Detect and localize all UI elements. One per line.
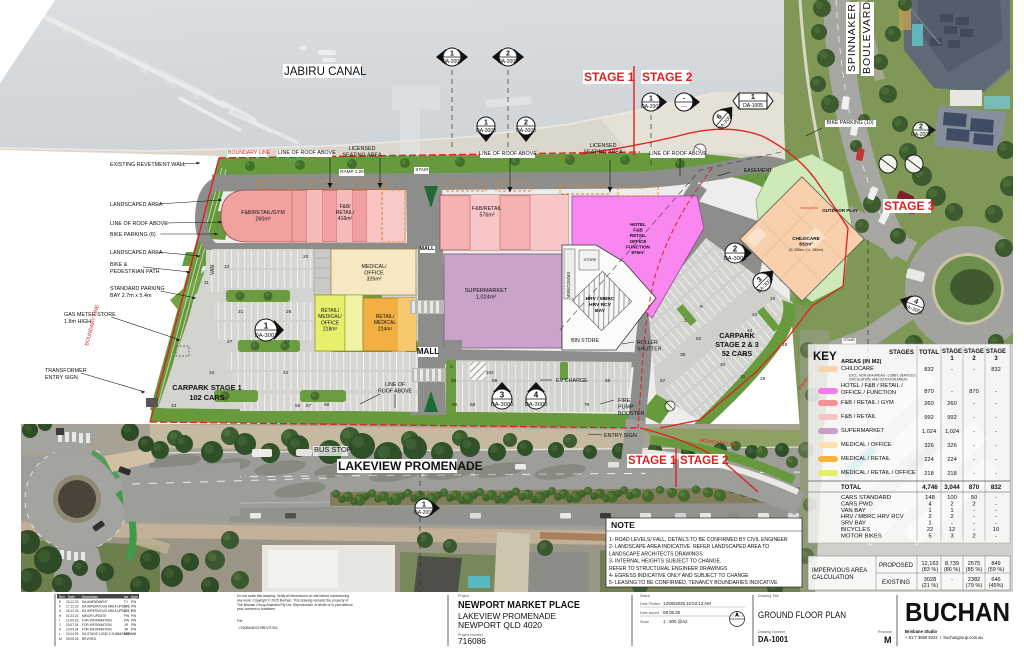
svg-text:I: I [59, 618, 60, 622]
svg-text:832: 832 [991, 484, 1002, 491]
svg-text:35: 35 [680, 352, 686, 358]
svg-text:MALL: MALL [420, 246, 436, 252]
svg-text:BUCHAN: BUCHAN [905, 597, 1010, 627]
svg-text:-: - [995, 415, 997, 421]
svg-text:4- EGRESS INDICATIVE ONLY AND: 4- EGRESS INDICATIVE ONLY AND SUBJECT TO… [609, 573, 749, 579]
svg-text:Scale: Scale [640, 620, 649, 624]
svg-text:Project: Project [458, 594, 469, 598]
svg-text:60: 60 [452, 402, 458, 408]
svg-text:2: 2 [928, 514, 931, 520]
svg-text:-: - [995, 457, 997, 463]
svg-text:(83 %): (83 %) [922, 567, 939, 573]
svg-text:JR: JR [124, 623, 129, 627]
svg-text:REFER TO STRUCTURAL ENGINEER D: REFER TO STRUCTURAL ENGINEER DRAWINGS [609, 566, 728, 572]
svg-text:20: 20 [303, 254, 309, 260]
svg-text:-: - [995, 471, 997, 477]
svg-text:AREAS (IN M2): AREAS (IN M2) [841, 359, 882, 365]
svg-text:1- ROAD LEVELS/ FALL, DETAILS: 1- ROAD LEVELS/ FALL, DETAILS TO BE CONF… [609, 537, 788, 543]
svg-text:1: 1 [264, 322, 269, 331]
svg-text:34: 34 [209, 370, 215, 376]
svg-text:Date Plotted: Date Plotted [640, 602, 660, 606]
svg-text:BICYCLES: BICYCLES [841, 527, 870, 533]
svg-text:224: 224 [924, 457, 934, 463]
svg-text:5- LEASING TO BE CONFIRMED, TE: 5- LEASING TO BE CONFIRMED, TENANCY BOUN… [609, 580, 778, 586]
svg-text:+ 61 7 3859 9222 I buchangro: + 61 7 3859 9222 I buchangroup.com.au [905, 635, 984, 640]
svg-text:43: 43 [171, 403, 177, 409]
svg-text:870: 870 [924, 389, 934, 395]
svg-text:DA-2000: DA-2000 [498, 59, 518, 65]
svg-text:3: 3 [500, 391, 505, 400]
svg-text:PW: PW [131, 605, 136, 609]
svg-text:58: 58 [324, 402, 330, 408]
svg-text:MEDICAL / OFFICE: MEDICAL / OFFICE [841, 442, 892, 448]
svg-text:----: ---- [681, 104, 688, 110]
svg-text:LINE OF ROOF ABOVE: LINE OF ROOF ABOVE [479, 151, 537, 157]
svg-text:LINE OF ROOF ABOVE: LINE OF ROOF ABOVE [649, 151, 707, 157]
svg-text:21: 21 [238, 309, 244, 315]
svg-text:TJ: TJ [124, 600, 128, 604]
svg-text:any work. Copyright © 2025 Buc: any work. Copyright © 2025 Buchan. This … [237, 598, 348, 602]
svg-text:DA-1001: DA-1001 [758, 635, 789, 644]
svg-text:TOTAL: TOTAL [919, 349, 939, 356]
svg-text:G: G [450, 364, 453, 369]
svg-text:PW: PW [131, 614, 136, 618]
svg-text:PROPOSED: PROPOSED [879, 563, 914, 569]
svg-text:260: 260 [924, 401, 934, 407]
svg-text:STAGE: STAGE [986, 349, 1006, 355]
svg-text:88: 88 [605, 378, 611, 384]
svg-text:224: 224 [947, 457, 957, 463]
svg-text:4: 4 [534, 391, 539, 400]
svg-text:89: 89 [492, 378, 498, 384]
svg-text:CARS STANDARD: CARS STANDARD [841, 495, 891, 501]
svg-text:(79 %): (79 %) [966, 583, 983, 589]
svg-text:832: 832 [924, 367, 934, 373]
svg-text:148: 148 [925, 495, 936, 501]
svg-text:-: - [973, 527, 975, 533]
svg-text:PW: PW [124, 618, 129, 622]
svg-text:2: 2 [524, 120, 528, 127]
svg-text:4,746: 4,746 [922, 484, 938, 491]
svg-text:CHILDCARE: CHILDCARE [841, 366, 874, 372]
svg-text:29: 29 [760, 376, 766, 382]
svg-text:12: 12 [949, 527, 956, 533]
svg-text:992: 992 [924, 415, 934, 421]
svg-text:870: 870 [969, 484, 980, 491]
svg-text:GROUND FLOOR PLAN: GROUND FLOOR PLAN [758, 610, 846, 621]
svg-text:Date Issued: Date Issued [640, 611, 659, 615]
svg-text:F: F [59, 605, 61, 609]
svg-text:-: - [951, 389, 953, 395]
svg-text:STAGE 1: STAGE 1 [584, 70, 635, 84]
svg-text:52: 52 [696, 336, 702, 342]
svg-text:1,024: 1,024 [945, 429, 959, 435]
svg-text:DA-3000: DA-3000 [491, 402, 514, 408]
svg-text:1,024: 1,024 [922, 429, 936, 435]
svg-text:20.07.24: 20.07.24 [66, 623, 79, 627]
svg-text:1: 1 [928, 508, 931, 514]
svg-text:GAS METER STORE: GAS METER STORE [64, 312, 116, 318]
svg-text:18.12.23: 18.12.23 [66, 609, 79, 613]
svg-text:L: L [59, 632, 61, 636]
svg-text:VAN BAY: VAN BAY [841, 508, 866, 514]
svg-text:27: 27 [227, 339, 233, 345]
svg-text:STAGE 1: STAGE 1 [628, 455, 677, 467]
svg-text:1 : 500 @A2: 1 : 500 @A2 [663, 619, 688, 624]
svg-text:Drawing Number: Drawing Number [758, 630, 786, 634]
svg-text:REVISED: REVISED [82, 637, 97, 641]
svg-text:-: - [995, 443, 997, 449]
svg-text:-: - [995, 508, 997, 514]
svg-text:326: 326 [924, 443, 934, 449]
svg-text:DA-3000: DA-3000 [516, 128, 536, 134]
svg-text:STAIR: STAIR [415, 167, 429, 172]
svg-text:PEDESTRIAN PATH: PEDESTRIAN PATH [110, 269, 160, 275]
svg-text:-: - [951, 367, 953, 373]
svg-text:-: - [973, 429, 975, 435]
svg-text:50: 50 [971, 495, 978, 501]
svg-text:DA AMENDMENT: DA AMENDMENT [82, 600, 108, 604]
svg-text:Do not scale this drawing. Ver: Do not scale this drawing. Verify all di… [237, 594, 349, 598]
svg-text:2: 2 [506, 51, 510, 58]
svg-text:DA-3001: DA-3001 [724, 256, 747, 262]
svg-text:DA-3001: DA-3001 [255, 333, 278, 339]
svg-text:DA-3000: DA-3000 [476, 128, 496, 134]
svg-text:EXISTING REVETMENT WALL: EXISTING REVETMENT WALL [110, 162, 186, 168]
svg-text:-: - [973, 471, 975, 477]
svg-text:Rev: Rev [59, 595, 65, 599]
svg-text:STANDARD PARKING: STANDARD PARKING [110, 286, 165, 292]
svg-text:MALL: MALL [417, 347, 439, 356]
svg-text:10.09.24: 10.09.24 [66, 628, 79, 632]
svg-text:PW: PW [131, 600, 136, 604]
svg-text:MSB/COMMS: MSB/COMMS [566, 272, 571, 298]
svg-text:EASEMENT: EASEMENT [744, 168, 773, 174]
svg-text:1: 1 [450, 51, 454, 58]
svg-text:RAMP 1:20: RAMP 1:20 [340, 169, 364, 174]
svg-text:BOULEVARD: BOULEVARD [861, 2, 873, 74]
svg-text:2- LANDSCAPE AREA INDICATIVE.: 2- LANDSCAPE AREA INDICATIVE. REFER LAND… [609, 544, 769, 550]
svg-text:MM: MM [131, 632, 137, 636]
svg-text:-: - [973, 508, 975, 514]
svg-text:MINOR UPDATE: MINOR UPDATE [82, 614, 106, 618]
svg-text:-: - [995, 401, 997, 407]
svg-text:EXISTING: EXISTING [882, 580, 910, 586]
svg-text:KEY: KEY [813, 351, 837, 363]
svg-text:HOTEL / F&B / RETAIL /: HOTEL / F&B / RETAIL / [841, 383, 903, 389]
svg-text:M: M [884, 635, 892, 645]
svg-text:1: 1 [422, 502, 426, 509]
svg-text:LINE OF ROOF ABOVE: LINE OF ROOF ABOVE [110, 221, 168, 227]
svg-text:Date: Date [68, 595, 75, 599]
svg-text:-: - [973, 514, 975, 520]
svg-text:BOUNDARY LINE: BOUNDARY LINE [228, 150, 271, 156]
svg-text:Status: Status [640, 594, 650, 598]
svg-text:JABIRU CANAL: JABIRU CANAL [284, 66, 367, 78]
svg-text:12/06/2025 10:52:12 AM: 12/06/2025 10:52:12 AM [663, 601, 711, 606]
svg-text:ENTRY SIGN: ENTRY SIGN [45, 375, 78, 381]
svg-text:File: File [237, 619, 243, 623]
svg-text:F&B / RETAIL: F&B / RETAIL [841, 414, 876, 420]
svg-text:-: - [995, 429, 997, 435]
svg-text:12.05.23: 12.05.23 [66, 618, 79, 622]
svg-text:43: 43 [752, 312, 758, 318]
svg-text:(85 %): (85 %) [966, 567, 983, 573]
svg-text:3,044: 3,044 [944, 484, 960, 491]
svg-text:VAN: VAN [210, 265, 216, 275]
svg-text:DA-2001: DA-2001 [641, 104, 661, 110]
svg-text:BIKE PARKING (6): BIKE PARKING (6) [110, 232, 156, 238]
svg-text:(21 %): (21 %) [922, 583, 939, 589]
svg-text:PW: PW [131, 618, 136, 622]
svg-text:1: 1 [649, 96, 653, 103]
svg-text:-: - [973, 521, 975, 527]
svg-text:Brisbane Studio: Brisbane Studio [905, 629, 938, 634]
svg-text:2: 2 [950, 514, 953, 520]
svg-text:BUS STOP: BUS STOP [314, 445, 352, 454]
svg-text:NEWPORT QLD 4020: NEWPORT QLD 4020 [458, 620, 542, 630]
svg-text:DA-1005: DA-1005 [743, 103, 763, 109]
svg-text:1: 1 [928, 521, 931, 527]
svg-text:-: - [995, 501, 997, 507]
svg-text:218: 218 [924, 471, 934, 477]
svg-text:CIRCULATION, AND OUTDOOR AREAS: CIRCULATION, AND OUTDOOR AREAS [849, 378, 907, 382]
svg-text:11: 11 [204, 280, 209, 286]
svg-text:F&B / RETAIL / GYM: F&B / RETAIL / GYM [841, 400, 894, 406]
svg-text:STAGE 2: STAGE 2 [680, 455, 728, 467]
svg-text:1: 1 [751, 94, 755, 101]
svg-text:SRV BAY: SRV BAY [841, 521, 866, 527]
svg-text:-: - [973, 367, 975, 373]
svg-text:12: 12 [224, 264, 230, 270]
svg-text:ENTRY SIGN: ENTRY SIGN [604, 433, 637, 439]
svg-text:22: 22 [927, 527, 934, 533]
svg-text:08.05.25: 08.05.25 [663, 610, 681, 615]
svg-text:(45%): (45%) [989, 583, 1004, 589]
svg-text:-: - [995, 495, 997, 501]
svg-text:BIN STORE: BIN STORE [571, 338, 599, 344]
svg-text:1: 1 [484, 120, 488, 127]
svg-text:STAGE: STAGE [942, 349, 962, 355]
svg-text:-: - [973, 401, 975, 407]
svg-text:2: 2 [950, 501, 953, 507]
svg-text:09.05.25: 09.05.25 [66, 637, 79, 641]
svg-text:DA IMPERVIOUS AREA UPDATE: DA IMPERVIOUS AREA UPDATE [82, 605, 130, 609]
svg-text:-: - [995, 521, 997, 527]
svg-text:PW: PW [131, 628, 136, 632]
svg-text:STAIR: STAIR [843, 337, 855, 342]
svg-text:DA-3000: DA-3000 [525, 402, 548, 408]
svg-text:TJ: TJ [124, 605, 128, 609]
svg-text:HRV / MBRC HRV RCV: HRV / MBRC HRV RCV [841, 514, 904, 520]
svg-text:Drawing Title: Drawing Title [758, 594, 779, 598]
svg-text:2: 2 [733, 245, 738, 254]
svg-text:992: 992 [947, 415, 957, 421]
svg-text:18: 18 [782, 342, 788, 348]
svg-text:LAKEVIEW PROMENADE: LAKEVIEW PROMENADE [338, 459, 483, 473]
svg-text:Revision: Revision [878, 630, 892, 634]
svg-text:Description: Description [82, 595, 98, 599]
svg-text:(59 %): (59 %) [988, 567, 1005, 573]
svg-text:1.8m HIGH: 1.8m HIGH [64, 319, 91, 325]
svg-text:STAGE 2: STAGE 2 [642, 70, 693, 84]
svg-text:DA-2000: DA-2000 [442, 59, 462, 65]
svg-text:1: 1 [684, 318, 687, 324]
svg-text:FOR INFORMATION: FOR INFORMATION [82, 623, 112, 627]
svg-text:10: 10 [993, 527, 1000, 533]
svg-text:80: 80 [451, 378, 457, 384]
svg-text:The Buchan Group Australia Pty: The Buchan Group Australia Pty Ltd. Repr… [237, 603, 353, 607]
svg-text:56: 56 [295, 403, 301, 409]
svg-text:57: 57 [306, 403, 312, 409]
svg-text:TJ: TJ [124, 609, 128, 613]
svg-text:JR: JR [124, 628, 129, 632]
svg-text:10: 10 [770, 296, 776, 302]
svg-text:STORE: STORE [583, 258, 596, 262]
svg-text:-: - [951, 521, 953, 527]
svg-text:-: - [973, 457, 975, 463]
svg-text:(G: 550m², L1: 282m²): (G: 550m², L1: 282m²) [789, 248, 824, 252]
svg-text:STAGE 3: STAGE 3 [884, 199, 935, 213]
svg-text:STAGES: STAGES [889, 349, 914, 356]
svg-text:2: 2 [919, 124, 923, 131]
svg-text:E: E [59, 600, 61, 604]
svg-text:102: 102 [486, 370, 494, 375]
svg-text:68: 68 [470, 402, 476, 408]
svg-text:MEDICAL / RETAIL / OFFICE: MEDICAL / RETAIL / OFFICE [841, 470, 916, 476]
svg-text:NEWPORT MARKET PLACE: NEWPORT MARKET PLACE [458, 600, 580, 611]
svg-text:15.12.23: 15.12.23 [66, 600, 79, 604]
svg-text:34: 34 [720, 362, 726, 368]
svg-text:79: 79 [584, 402, 590, 408]
svg-text:BIKE PARKING (10): BIKE PARKING (10) [827, 120, 874, 126]
svg-text:-: - [995, 389, 997, 395]
svg-text:LANDSCAPED AREA: LANDSCAPED AREA [110, 250, 163, 256]
svg-text:01.03.23: 01.03.23 [66, 614, 79, 618]
svg-text:LANDSCAPE ARCHITECTS DRAWINGS: LANDSCAPE ARCHITECTS DRAWINGS [609, 551, 703, 557]
svg-text:870: 870 [969, 389, 979, 395]
svg-text:SPINNAKER: SPINNAKER [846, 4, 858, 72]
svg-text:EV CHARGE: EV CHARGE [556, 378, 588, 384]
svg-text:LINE OF ROOF ABOVE: LINE OF ROOF ABOVE [278, 150, 336, 156]
svg-text:..716086/ARCHIREVIT/DA: ..716086/ARCHIREVIT/DA [237, 626, 278, 630]
svg-text:LANDSCAPED AREA: LANDSCAPED AREA [110, 202, 163, 208]
svg-text:SUPERMARKET: SUPERMARKET [841, 428, 885, 434]
svg-text:TRANSFORMER: TRANSFORMER [45, 368, 87, 374]
svg-text:(86 %): (86 %) [944, 567, 961, 573]
svg-text:832: 832 [991, 367, 1001, 373]
svg-text:9: 9 [700, 304, 703, 310]
svg-text:BIKE &: BIKE & [110, 262, 128, 268]
svg-text:STAGE: STAGE [964, 349, 984, 355]
svg-text:2: 2 [972, 501, 975, 507]
svg-text:M: M [59, 637, 62, 641]
svg-text:33: 33 [284, 339, 290, 345]
svg-text:17.12.23: 17.12.23 [66, 605, 79, 609]
svg-text:3- INTERNAL HEIGHTS SUBJECT TO: 3- INTERNAL HEIGHTS SUBJECT TO CHANGE. [609, 559, 721, 565]
svg-text:24.04.25: 24.04.25 [66, 632, 79, 636]
svg-text:IMPERVIOUS AREA: IMPERVIOUS AREA [812, 568, 867, 574]
svg-text:MEDICAL / RETAIL: MEDICAL / RETAIL [841, 456, 890, 462]
svg-text:-: - [995, 514, 997, 520]
svg-text:PW: PW [131, 623, 136, 627]
svg-text:31: 31 [740, 374, 746, 380]
svg-text:2: 2 [972, 533, 975, 539]
svg-text:42: 42 [283, 370, 289, 376]
svg-text:Iss: Iss [124, 595, 128, 599]
svg-text:Appr: Appr [131, 595, 139, 599]
svg-text:326: 326 [947, 443, 957, 449]
svg-text:MM: MM [124, 632, 130, 636]
svg-text:OFFICE / FUNCTION: OFFICE / FUNCTION [841, 390, 896, 396]
svg-text:260: 260 [947, 401, 957, 407]
svg-text:-: - [995, 533, 997, 539]
svg-text:NOTE: NOTE [611, 520, 635, 530]
svg-text:67: 67 [660, 378, 666, 384]
svg-text:26: 26 [286, 309, 292, 315]
svg-text:FOR INFORMATION: FOR INFORMATION [82, 618, 112, 622]
svg-text:DA-2000: DA-2000 [414, 510, 434, 516]
svg-text:PW: PW [124, 614, 129, 618]
svg-text:BAY 2.7m x 5.4m: BAY 2.7m x 5.4m [110, 293, 152, 299]
svg-text:-: - [973, 443, 975, 449]
svg-text:-: - [973, 415, 975, 421]
svg-text:716086: 716086 [458, 636, 486, 646]
svg-text:MOTOR BIKES: MOTOR BIKES [841, 533, 882, 539]
svg-text:1: 1 [950, 508, 953, 514]
svg-text:-: - [951, 577, 953, 583]
svg-text:prior consent is forbidden.: prior consent is forbidden. [237, 607, 276, 611]
svg-text:TOTAL: TOTAL [841, 484, 861, 491]
svg-text:OUTDOOR PLAY: OUTDOOR PLAY [822, 208, 858, 213]
svg-text:DA-2001: DA-2001 [911, 132, 931, 138]
svg-text:CALCULATION: CALCULATION [812, 575, 854, 581]
svg-text:218: 218 [947, 471, 957, 477]
svg-text:100: 100 [947, 495, 958, 501]
svg-text:FOR INFORMATION: FOR INFORMATION [82, 628, 112, 632]
svg-text:CARS PWD: CARS PWD [841, 501, 873, 507]
svg-text:PW: PW [131, 609, 136, 613]
